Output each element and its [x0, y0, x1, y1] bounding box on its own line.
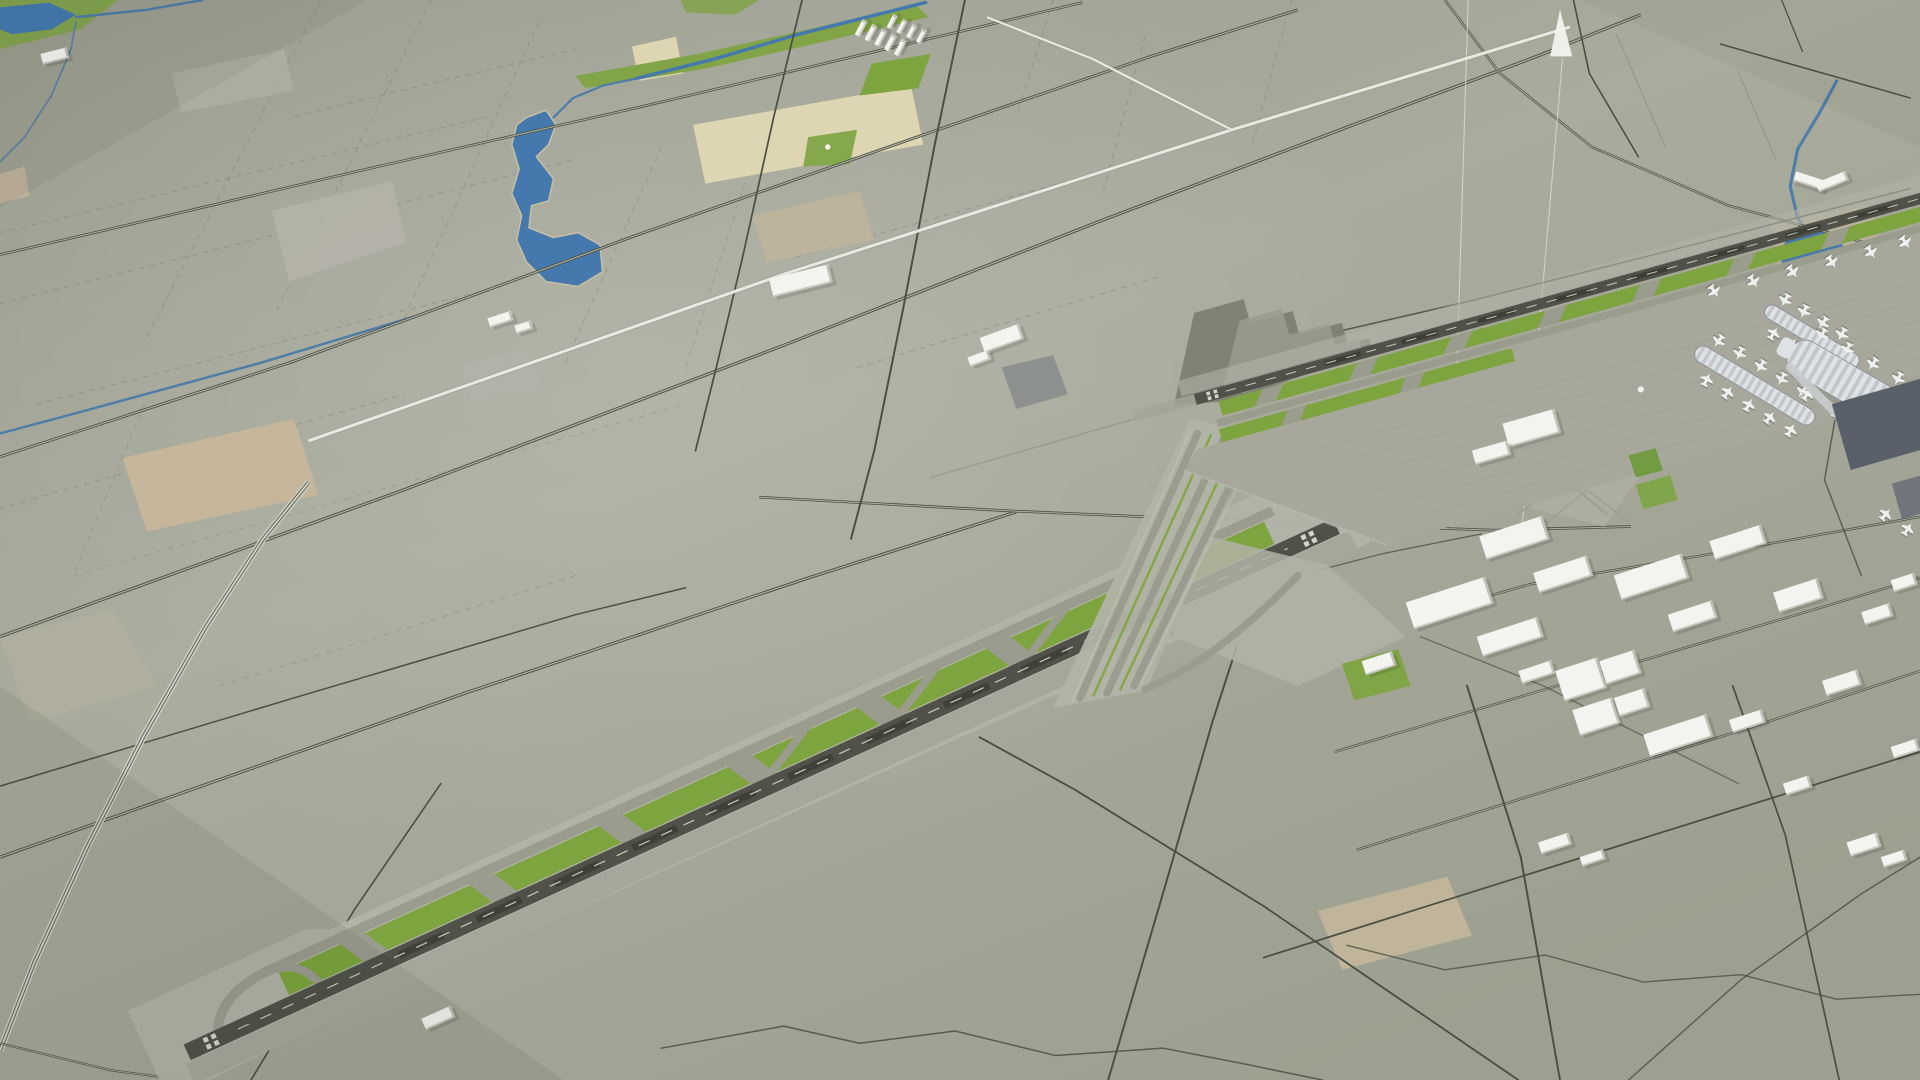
render-stage [0, 0, 1920, 1080]
golf-building [825, 144, 830, 149]
map-viewport[interactable] [0, 0, 1920, 1080]
control-tower [1638, 386, 1644, 392]
